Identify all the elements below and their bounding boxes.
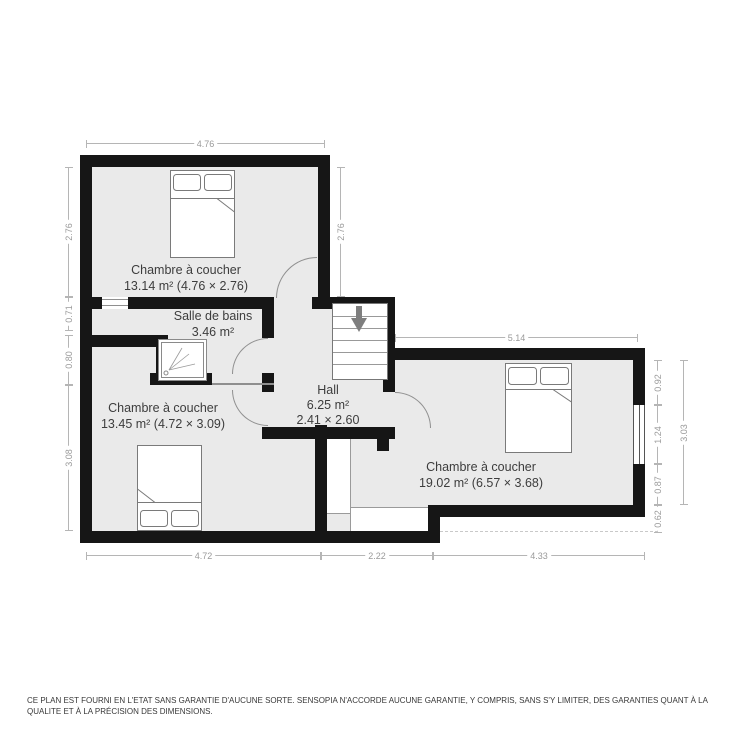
dimension-inner: 2.76	[340, 167, 341, 297]
dimension-right-room-width: 5.14	[395, 337, 638, 338]
bed-icon	[137, 445, 202, 531]
shower-icon	[158, 339, 207, 381]
wall	[80, 531, 440, 543]
bed-icon	[505, 363, 572, 453]
dimension-right: 0.62	[657, 505, 658, 533]
room-details: 13.14 m² (4.76 × 2.76)	[124, 279, 248, 293]
room-name: Chambre à coucher	[131, 263, 241, 277]
wall	[318, 155, 330, 309]
dimension-left: 0.80	[68, 335, 69, 385]
wall	[312, 297, 330, 309]
opening-line	[102, 299, 128, 300]
room-details: 13.45 m² (4.72 × 3.09)	[101, 417, 225, 431]
dimension-right-total: 3.03	[683, 360, 684, 505]
dimension-left: 2.76	[68, 167, 69, 297]
wall	[262, 297, 274, 338]
wall	[80, 155, 330, 167]
disclaimer-text: CE PLAN EST FOURNI EN L'ETAT SANS GARANT…	[27, 696, 733, 717]
wall	[315, 425, 327, 543]
room-name: Salle de bains	[174, 309, 253, 323]
void-stairwell-strip	[327, 437, 351, 514]
dimension-bottom: 2.22	[321, 555, 433, 556]
wall	[92, 297, 102, 309]
wall	[377, 439, 389, 451]
room-name: Hall	[317, 383, 339, 397]
wall	[262, 427, 395, 439]
opening-line	[102, 305, 128, 306]
dimension-left: 3.08	[68, 385, 69, 531]
dimension-bottom: 4.33	[433, 555, 645, 556]
dimension-left: 0.71	[68, 297, 69, 331]
dimension-right: 0.92	[657, 360, 658, 405]
stair-tread	[333, 364, 387, 365]
bed-icon	[170, 170, 235, 258]
void-floor-notch	[350, 507, 429, 532]
room-name: Chambre à coucher	[108, 401, 218, 415]
room-details: 2.41 × 2.60	[297, 413, 360, 427]
window	[633, 405, 645, 464]
floor-plan: Chambre à coucher 13.14 m² (4.76 × 2.76)…	[0, 0, 750, 750]
dimension-right: 0.87	[657, 464, 658, 505]
stair-tread	[333, 352, 387, 353]
room-details: 6.25 m²	[307, 398, 349, 412]
wall	[128, 297, 273, 309]
dimension-right: 1.24	[657, 405, 658, 464]
wall	[80, 155, 92, 543]
wall	[80, 335, 158, 347]
dimension-bottom: 4.72	[86, 555, 321, 556]
stair-tread	[333, 340, 387, 341]
wall	[383, 348, 645, 360]
wall	[633, 464, 645, 517]
dimension-top-width: 4.76	[86, 143, 325, 144]
guide-line	[440, 531, 658, 532]
thin-wall-bathroom	[212, 383, 274, 385]
wall	[428, 505, 645, 517]
room-details: 3.46 m²	[192, 325, 234, 339]
stairs-down-arrow-icon	[351, 306, 367, 333]
room-details: 19.02 m² (6.57 × 3.68)	[419, 476, 543, 490]
room-name: Chambre à coucher	[426, 460, 536, 474]
